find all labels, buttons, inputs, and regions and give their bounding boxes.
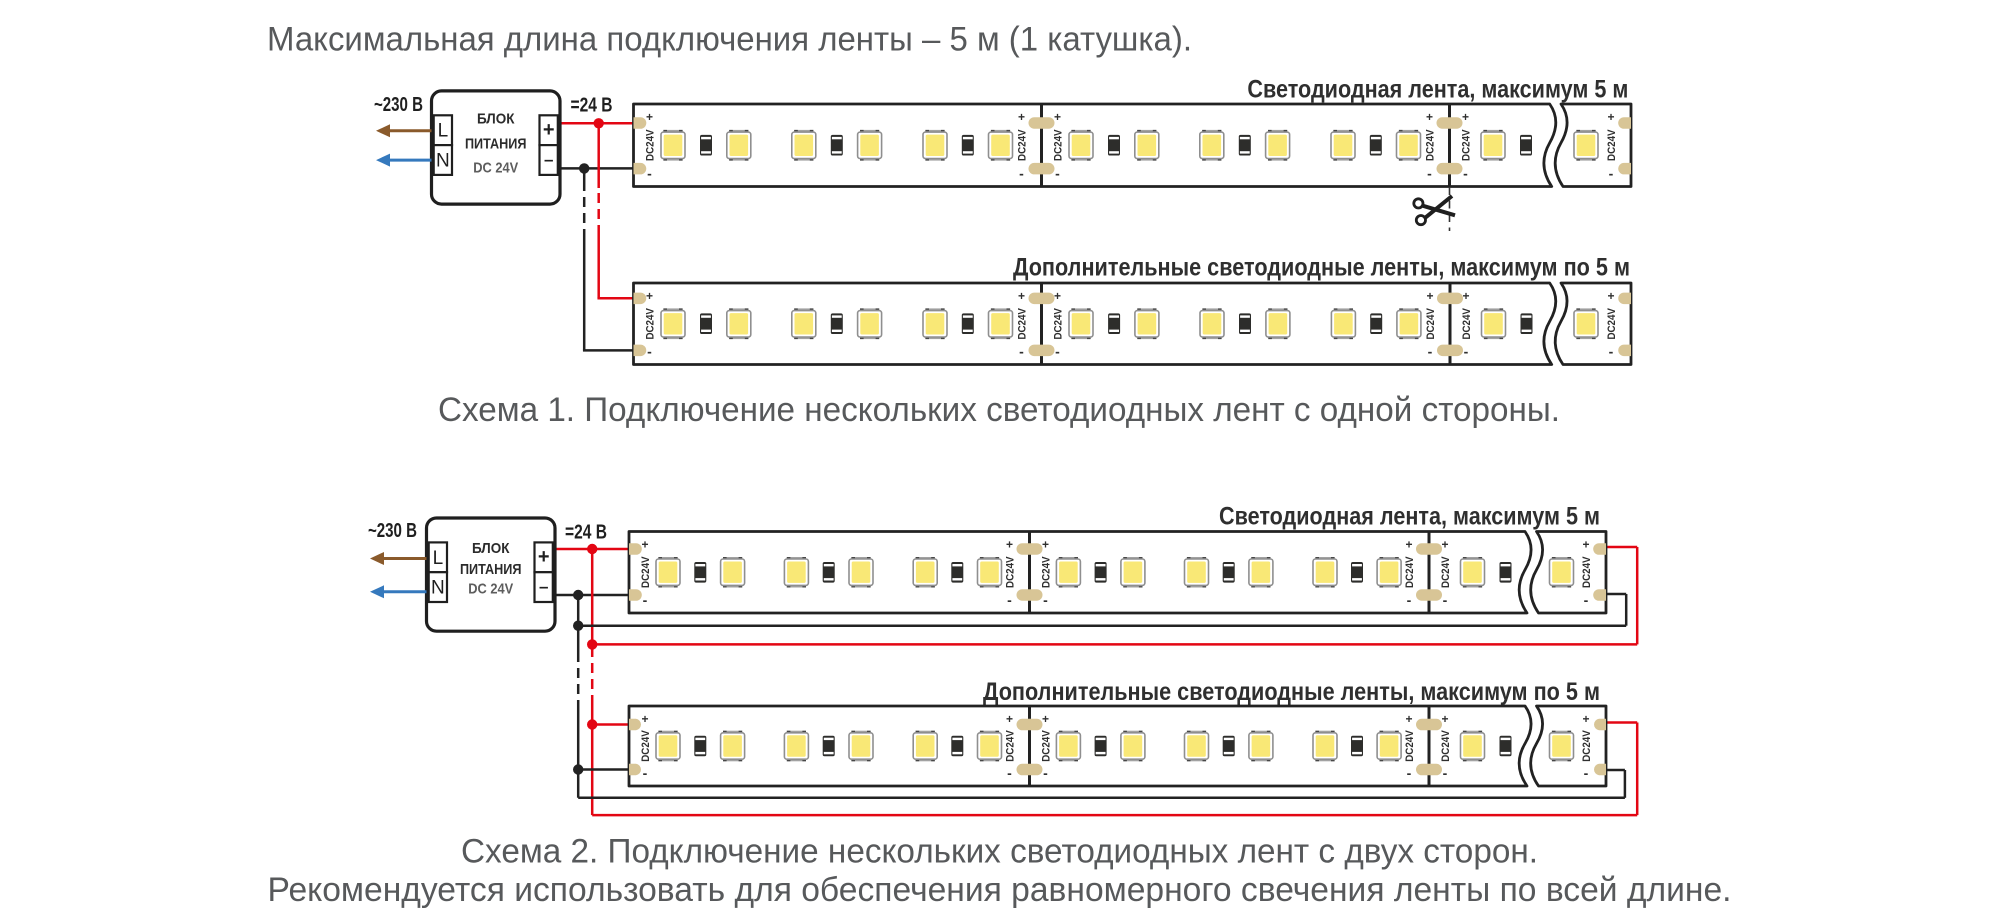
svg-text:=24 В: =24 В	[565, 522, 607, 544]
svg-text:+: +	[1582, 537, 1589, 551]
svg-text:+: +	[1441, 712, 1448, 726]
svg-text:+: +	[1582, 712, 1589, 726]
svg-text:-: -	[1464, 343, 1469, 359]
svg-text:ПИТАНИЯ: ПИТАНИЯ	[465, 136, 527, 153]
svg-text:+: +	[1018, 110, 1025, 124]
svg-text:-: -	[1584, 592, 1589, 608]
svg-text:L: L	[433, 548, 444, 569]
svg-text:+: +	[543, 119, 555, 141]
svg-text:-: -	[1043, 765, 1048, 781]
svg-text:DC24V: DC24V	[645, 129, 657, 161]
svg-text:DC24V: DC24V	[1053, 307, 1065, 339]
svg-text:-: -	[1043, 592, 1048, 608]
svg-text:DC24V: DC24V	[1041, 556, 1053, 588]
svg-text:-: -	[1427, 165, 1432, 181]
svg-text:Максимальная длина подключения: Максимальная длина подключения ленты – 5…	[267, 21, 1192, 59]
svg-text:+: +	[1426, 110, 1433, 124]
svg-text:~230 В: ~230 В	[374, 94, 423, 116]
svg-text:+: +	[1462, 289, 1469, 303]
svg-text:-: -	[1609, 343, 1614, 359]
svg-text:DC24V: DC24V	[1041, 730, 1053, 762]
svg-text:DC 24V: DC 24V	[473, 160, 518, 177]
svg-text:+: +	[646, 110, 653, 124]
svg-text:DC24V: DC24V	[1440, 730, 1452, 762]
svg-text:+: +	[1018, 289, 1025, 303]
svg-text:+: +	[641, 712, 648, 726]
svg-text:DC 24V: DC 24V	[468, 581, 513, 598]
svg-text:-: -	[1055, 343, 1060, 359]
svg-text:~230 В: ~230 В	[368, 520, 417, 542]
svg-text:+: +	[1462, 110, 1469, 124]
svg-text:N: N	[431, 578, 445, 599]
svg-text:+: +	[1042, 537, 1049, 551]
svg-text:-: -	[1019, 343, 1024, 359]
svg-text:-: -	[647, 343, 652, 359]
svg-text:DC24V: DC24V	[1581, 556, 1593, 588]
svg-text:+: +	[1426, 289, 1433, 303]
svg-text:Рекомендуется использовать для: Рекомендуется использовать для обеспечен…	[268, 871, 1732, 909]
svg-text:DC24V: DC24V	[1425, 129, 1437, 161]
svg-text:DC24V: DC24V	[640, 730, 652, 762]
svg-text:Схема 1. Подключение нескольки: Схема 1. Подключение нескольких светодио…	[438, 391, 1560, 429]
svg-text:–: –	[539, 577, 548, 596]
svg-text:-: -	[1443, 765, 1448, 781]
svg-text:-: -	[1463, 165, 1468, 181]
svg-text:Дополнительные светодиодные ле: Дополнительные светодиодные ленты, макси…	[983, 678, 1600, 706]
svg-text:L: L	[438, 121, 449, 142]
svg-text:+: +	[1607, 110, 1614, 124]
svg-text:-: -	[1584, 765, 1589, 781]
svg-text:DC24V: DC24V	[1404, 730, 1416, 762]
svg-text:ПИТАНИЯ: ПИТАНИЯ	[460, 561, 522, 578]
svg-text:–: –	[544, 150, 553, 169]
svg-text:DC24V: DC24V	[1053, 129, 1065, 161]
svg-text:DC24V: DC24V	[645, 307, 657, 339]
svg-text:Дополнительные светодиодные ле: Дополнительные светодиодные ленты, макси…	[1013, 254, 1630, 282]
svg-text:-: -	[1007, 592, 1012, 608]
svg-text:DC24V: DC24V	[1425, 307, 1437, 339]
svg-text:-: -	[1007, 765, 1012, 781]
svg-text:+: +	[1054, 110, 1061, 124]
svg-text:DC24V: DC24V	[1461, 307, 1473, 339]
svg-text:+: +	[641, 537, 648, 551]
svg-text:-: -	[1443, 592, 1448, 608]
svg-text:+: +	[1607, 289, 1614, 303]
svg-text:+: +	[646, 289, 653, 303]
svg-text:DC24V: DC24V	[1606, 129, 1618, 161]
svg-text:DC24V: DC24V	[1005, 556, 1017, 588]
svg-text:+: +	[1006, 537, 1013, 551]
svg-text:DC24V: DC24V	[640, 556, 652, 588]
svg-text:DC24V: DC24V	[1005, 730, 1017, 762]
svg-text:-: -	[643, 592, 648, 608]
svg-text:+: +	[538, 546, 550, 568]
svg-text:DC24V: DC24V	[1606, 307, 1618, 339]
svg-text:=24 В: =24 В	[571, 95, 613, 117]
svg-text:-: -	[1407, 592, 1412, 608]
svg-text:Светодиодная лента, максимум 5: Светодиодная лента, максимум 5 м	[1247, 76, 1628, 104]
svg-text:DC24V: DC24V	[1017, 307, 1029, 339]
svg-text:DC24V: DC24V	[1017, 129, 1029, 161]
svg-text:-: -	[643, 765, 648, 781]
svg-text:+: +	[1042, 712, 1049, 726]
svg-text:+: +	[1054, 289, 1061, 303]
svg-text:DC24V: DC24V	[1440, 556, 1452, 588]
svg-text:-: -	[1055, 165, 1060, 181]
svg-text:БЛОК: БЛОК	[477, 111, 515, 128]
svg-text:N: N	[436, 151, 450, 172]
svg-text:Светодиодная лента, максимум 5: Светодиодная лента, максимум 5 м	[1219, 503, 1600, 531]
svg-text:-: -	[1609, 165, 1614, 181]
svg-text:+: +	[1006, 712, 1013, 726]
svg-text:БЛОК: БЛОК	[472, 540, 510, 557]
svg-text:+: +	[1405, 712, 1412, 726]
svg-text:-: -	[1407, 765, 1412, 781]
svg-text:-: -	[1019, 165, 1024, 181]
svg-text:-: -	[647, 165, 652, 181]
svg-text:DC24V: DC24V	[1404, 556, 1416, 588]
svg-text:+: +	[1441, 537, 1448, 551]
svg-text:+: +	[1405, 537, 1412, 551]
svg-text:DC24V: DC24V	[1581, 730, 1593, 762]
svg-text:DC24V: DC24V	[1461, 129, 1473, 161]
svg-text:-: -	[1428, 343, 1433, 359]
svg-text:Схема 2. Подключение нескольки: Схема 2. Подключение нескольких светодио…	[461, 833, 1538, 871]
